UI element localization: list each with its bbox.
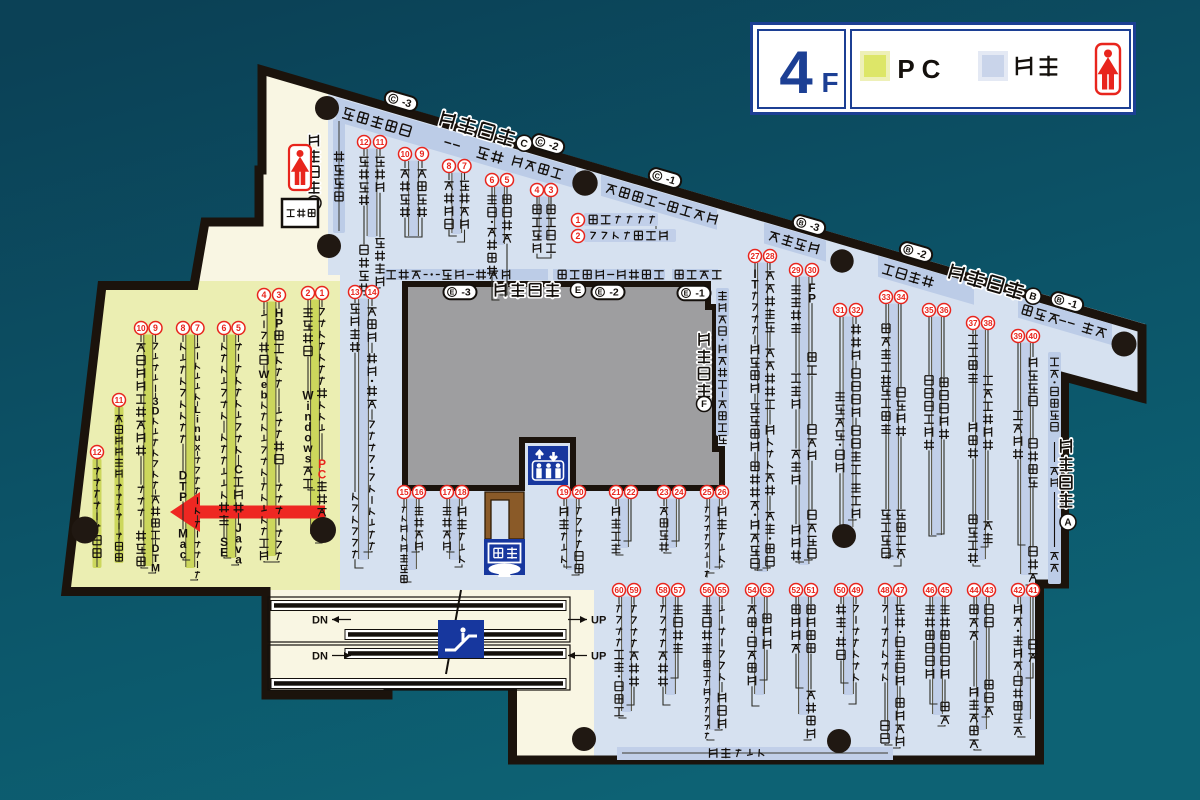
svg-text:30: 30	[807, 266, 817, 275]
svg-text:50: 50	[836, 586, 846, 595]
svg-text:41: 41	[1028, 586, 1038, 595]
svg-text:15: 15	[399, 488, 409, 497]
svg-text:42: 42	[1013, 586, 1023, 595]
svg-text:31: 31	[835, 306, 845, 315]
svg-text:22: 22	[626, 488, 636, 497]
svg-text:27: 27	[750, 252, 760, 261]
svg-text:DN: DN	[312, 651, 328, 663]
svg-text:E: E	[220, 545, 228, 559]
svg-text:47: 47	[895, 586, 905, 595]
svg-text:A: A	[1064, 517, 1071, 528]
svg-text:36: 36	[939, 306, 949, 315]
svg-text:4: 4	[779, 39, 813, 106]
svg-text:38: 38	[983, 319, 993, 328]
svg-text:39: 39	[1013, 332, 1023, 341]
svg-text:12: 12	[92, 448, 102, 457]
svg-text:F: F	[701, 399, 707, 410]
svg-text:T: T	[751, 278, 759, 292]
svg-text:43: 43	[984, 586, 994, 595]
svg-text:1: 1	[576, 215, 581, 225]
svg-text:13: 13	[350, 288, 360, 297]
svg-text:P: P	[808, 292, 816, 306]
svg-text:8: 8	[447, 161, 452, 171]
svg-text:23: 23	[659, 488, 669, 497]
svg-text:DN: DN	[312, 615, 328, 627]
svg-text:3: 3	[549, 185, 554, 195]
svg-text:C: C	[234, 463, 243, 477]
svg-text:C: C	[318, 467, 327, 481]
svg-text:37: 37	[968, 319, 978, 328]
svg-text:2: 2	[576, 231, 581, 241]
svg-text:55: 55	[717, 586, 727, 595]
svg-text:7: 7	[462, 161, 467, 171]
svg-text:E: E	[450, 290, 455, 297]
svg-text:19: 19	[559, 488, 569, 497]
svg-text:7: 7	[195, 323, 200, 333]
svg-text:56: 56	[702, 586, 712, 595]
svg-text:24: 24	[674, 488, 684, 497]
svg-text:9: 9	[420, 149, 425, 159]
svg-text:D: D	[152, 406, 160, 418]
svg-text:M: M	[151, 563, 160, 575]
svg-text:28: 28	[765, 252, 775, 261]
svg-text:10: 10	[400, 150, 410, 159]
svg-text:54: 54	[747, 586, 757, 595]
svg-text:3: 3	[277, 290, 282, 300]
svg-text:x: x	[195, 442, 201, 454]
svg-text:58: 58	[658, 586, 668, 595]
svg-text:P: P	[179, 490, 187, 504]
svg-text:6: 6	[222, 323, 227, 333]
svg-text:45: 45	[940, 586, 950, 595]
svg-text:E: E	[575, 285, 581, 296]
svg-text:s: s	[305, 452, 312, 466]
svg-text:5: 5	[236, 323, 241, 333]
svg-text:32: 32	[851, 306, 861, 315]
svg-text:35: 35	[924, 306, 934, 315]
svg-text:33: 33	[881, 293, 891, 302]
svg-text:UP: UP	[591, 651, 606, 663]
svg-text:UP: UP	[591, 615, 606, 627]
svg-text:59: 59	[629, 586, 639, 595]
svg-text:5: 5	[505, 175, 510, 185]
svg-text:1: 1	[320, 288, 325, 298]
svg-text:-2: -2	[609, 287, 618, 299]
svg-text:2: 2	[306, 288, 311, 298]
svg-text:48: 48	[880, 586, 890, 595]
svg-text:E: E	[598, 290, 603, 297]
svg-text:10: 10	[136, 324, 146, 333]
svg-text:12: 12	[359, 138, 369, 147]
svg-text:P: P	[275, 317, 283, 331]
svg-text:21: 21	[611, 488, 621, 497]
svg-text:60: 60	[614, 586, 624, 595]
svg-text:57: 57	[673, 586, 683, 595]
svg-text:b: b	[261, 389, 268, 401]
svg-text:46: 46	[925, 586, 935, 595]
svg-text:-1: -1	[695, 288, 704, 300]
svg-text:11: 11	[115, 396, 124, 405]
svg-text:c: c	[180, 547, 187, 561]
svg-text:25: 25	[702, 488, 712, 497]
svg-text:9: 9	[153, 323, 158, 333]
svg-text:40: 40	[1028, 332, 1038, 341]
svg-text:F: F	[821, 67, 838, 98]
svg-text:51: 51	[806, 586, 816, 595]
svg-text:44: 44	[969, 586, 979, 595]
svg-text:16: 16	[414, 488, 424, 497]
svg-text:11: 11	[376, 138, 385, 147]
svg-text:6: 6	[490, 175, 495, 185]
svg-text:20: 20	[574, 488, 584, 497]
svg-text:14: 14	[367, 288, 377, 297]
svg-text:C: C	[922, 54, 941, 84]
svg-text:17: 17	[442, 488, 452, 497]
svg-text:53: 53	[762, 586, 772, 595]
svg-text:29: 29	[791, 266, 801, 275]
svg-text:a: a	[235, 552, 242, 566]
svg-text:E: E	[684, 291, 689, 298]
svg-text:8: 8	[181, 323, 186, 333]
svg-text:26: 26	[717, 488, 727, 497]
svg-text:34: 34	[896, 293, 906, 302]
svg-text:52: 52	[791, 586, 801, 595]
svg-text:18: 18	[457, 488, 467, 497]
svg-text:49: 49	[851, 586, 861, 595]
svg-text:P: P	[897, 54, 914, 84]
svg-text:4: 4	[262, 290, 267, 300]
svg-text:4: 4	[535, 185, 540, 195]
svg-text:-3: -3	[461, 287, 470, 299]
